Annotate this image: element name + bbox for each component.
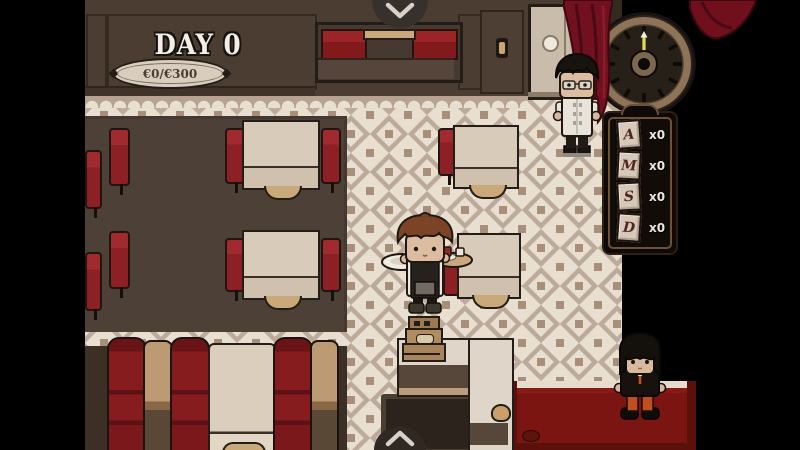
booth-bench bbox=[170, 337, 210, 450]
ticket-count: x0 bbox=[649, 190, 665, 204]
order-ticket-icon: M bbox=[616, 150, 641, 180]
chevron-up-icon bbox=[374, 426, 426, 450]
order-board[interactable]: A x0 M x0 S x0 D x0 bbox=[602, 111, 678, 255]
customer-character[interactable] bbox=[612, 328, 668, 428]
corner-curtain bbox=[688, 0, 758, 44]
booth-tabletop bbox=[363, 29, 416, 40]
wall-booth-alcove bbox=[315, 22, 463, 83]
ticket-count: x0 bbox=[649, 159, 665, 173]
tea-cup-icon bbox=[456, 248, 464, 256]
order-ticket-icon: A bbox=[616, 119, 642, 150]
day-label: DAY 0 bbox=[145, 28, 251, 61]
barista-character[interactable] bbox=[544, 50, 608, 160]
order-board-row: S x0 bbox=[610, 181, 670, 212]
wall-panel bbox=[86, 14, 107, 90]
booth-seat bbox=[412, 29, 458, 60]
carpet-item bbox=[522, 430, 540, 442]
order-board-frame: A x0 M x0 S x0 D x0 bbox=[608, 117, 672, 249]
counter-bell[interactable] bbox=[491, 404, 511, 422]
counter-band bbox=[470, 423, 508, 445]
dining-table[interactable] bbox=[453, 125, 519, 189]
dining-table[interactable] bbox=[242, 120, 320, 190]
chair bbox=[85, 150, 102, 209]
chair bbox=[321, 238, 341, 292]
chevron-down-icon bbox=[372, 0, 428, 28]
wall-trim bbox=[85, 96, 528, 108]
money-label: €0/€300 bbox=[143, 67, 197, 81]
scroll-down-button[interactable] bbox=[374, 426, 426, 450]
chair bbox=[109, 128, 130, 186]
cash-register-base bbox=[402, 343, 446, 362]
ticket-count: x0 bbox=[649, 221, 665, 235]
game-viewport: A x0 M x0 S x0 D x0 bbox=[0, 0, 800, 450]
order-ticket-icon: S bbox=[616, 181, 641, 211]
booth-seat bbox=[321, 29, 367, 60]
booth-big-table[interactable] bbox=[208, 343, 276, 450]
order-board-row: D x0 bbox=[610, 212, 670, 243]
back-door[interactable] bbox=[480, 10, 524, 94]
order-board-ornament bbox=[621, 104, 659, 115]
booth-bench bbox=[107, 337, 147, 450]
keyhole-plate bbox=[496, 38, 508, 58]
waiter-character[interactable] bbox=[375, 208, 475, 316]
chair bbox=[321, 128, 341, 184]
left-darkness bbox=[0, 0, 85, 450]
order-board-row: A x0 bbox=[610, 119, 670, 150]
booth-table[interactable] bbox=[143, 340, 173, 450]
scroll-up-button[interactable] bbox=[372, 0, 428, 28]
booth-bench bbox=[273, 337, 313, 450]
booth-front bbox=[318, 58, 454, 79]
clock-hand-icon bbox=[642, 36, 645, 52]
dining-table[interactable] bbox=[242, 230, 320, 300]
money-plaque: €0/€300 bbox=[112, 58, 228, 89]
order-board-row: M x0 bbox=[610, 150, 670, 181]
order-ticket-icon: D bbox=[616, 212, 642, 243]
chair bbox=[109, 231, 130, 289]
chair bbox=[85, 252, 102, 311]
ticket-count: x0 bbox=[649, 128, 665, 142]
booth-table[interactable] bbox=[310, 340, 339, 450]
